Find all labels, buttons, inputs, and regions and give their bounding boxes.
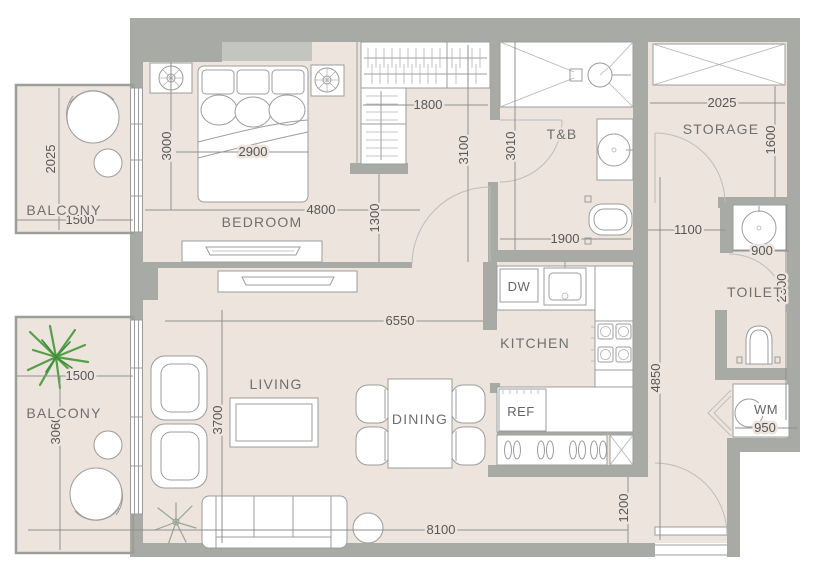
label-tb: T&B (547, 126, 578, 142)
balcony-bottom-chair (70, 468, 122, 520)
balcony-top-table (94, 149, 122, 177)
dim-bedroom-depth: 3000 (159, 132, 174, 161)
stove (591, 321, 633, 370)
floor-plan-svg: 2025 1500 3000 2900 4800 1300 1800 3100 … (0, 0, 826, 584)
dim-storage-width: 2025 (708, 95, 737, 110)
balcony-bottom-window (131, 320, 143, 514)
label-storage: STORAGE (683, 121, 760, 137)
label-living: LIVING (249, 376, 302, 392)
dim-closet-width: 1800 (414, 97, 443, 112)
bulkhead (222, 42, 312, 61)
dim-closet-depth: 3100 (456, 136, 471, 165)
living-console (218, 271, 357, 292)
balcony-top-chair (67, 91, 119, 143)
armchair-1 (151, 356, 207, 420)
label-washing-machine: WM (754, 402, 778, 417)
side-table (353, 513, 383, 543)
dim-wm-width: 950 (754, 420, 776, 435)
dim-bed-width: 2900 (239, 144, 268, 159)
dim-unit-width: 8100 (427, 522, 456, 537)
label-toilet: TOILET (727, 284, 783, 300)
armchair-2 (151, 424, 207, 488)
dim-balcony-top-depth: 2025 (43, 145, 58, 174)
dim-bedroom-door: 1300 (367, 204, 382, 233)
nightstand-right (311, 65, 344, 96)
dim-storage-depth: 1600 (763, 126, 778, 155)
balcony-top-window (131, 88, 143, 232)
label-balcony-top: BALCONY (26, 202, 101, 218)
kitchen-sink (544, 261, 586, 305)
label-balcony-bottom: BALCONY (26, 405, 101, 421)
dim-bedroom-length: 4800 (307, 202, 336, 217)
storage-shaft (653, 44, 785, 85)
dim-living-width: 6550 (386, 313, 415, 328)
label-refrigerator: REF (507, 404, 535, 419)
label-dishwasher: DW (508, 279, 531, 294)
dim-hallway-length: 4850 (648, 364, 663, 393)
dim-hall-width: 1100 (674, 222, 702, 237)
dim-toilet-sink: 900 (751, 243, 773, 258)
bedroom-dresser (182, 241, 322, 262)
coffee-table (230, 398, 318, 447)
dim-tb-depth: 3010 (503, 132, 518, 161)
shoe-cabinet (497, 435, 607, 465)
label-kitchen: KITCHEN (500, 335, 570, 351)
dim-living-depth: 3700 (210, 406, 225, 435)
shower (500, 42, 633, 107)
balcony-bottom-table (94, 431, 122, 459)
dim-balcony-bottom-width: 1500 (66, 368, 95, 383)
dim-entry-width: 1200 (616, 494, 631, 523)
label-dining: DINING (392, 411, 448, 427)
tb-sink (597, 119, 634, 180)
dim-tb-width: 1900 (551, 231, 580, 246)
sofa (202, 496, 347, 548)
floor-plan-page: 2025 1500 3000 2900 4800 1300 1800 3100 … (0, 0, 826, 584)
kitchen-shaft (610, 435, 633, 465)
label-bedroom: BEDROOM (222, 214, 303, 230)
bed (198, 66, 308, 202)
